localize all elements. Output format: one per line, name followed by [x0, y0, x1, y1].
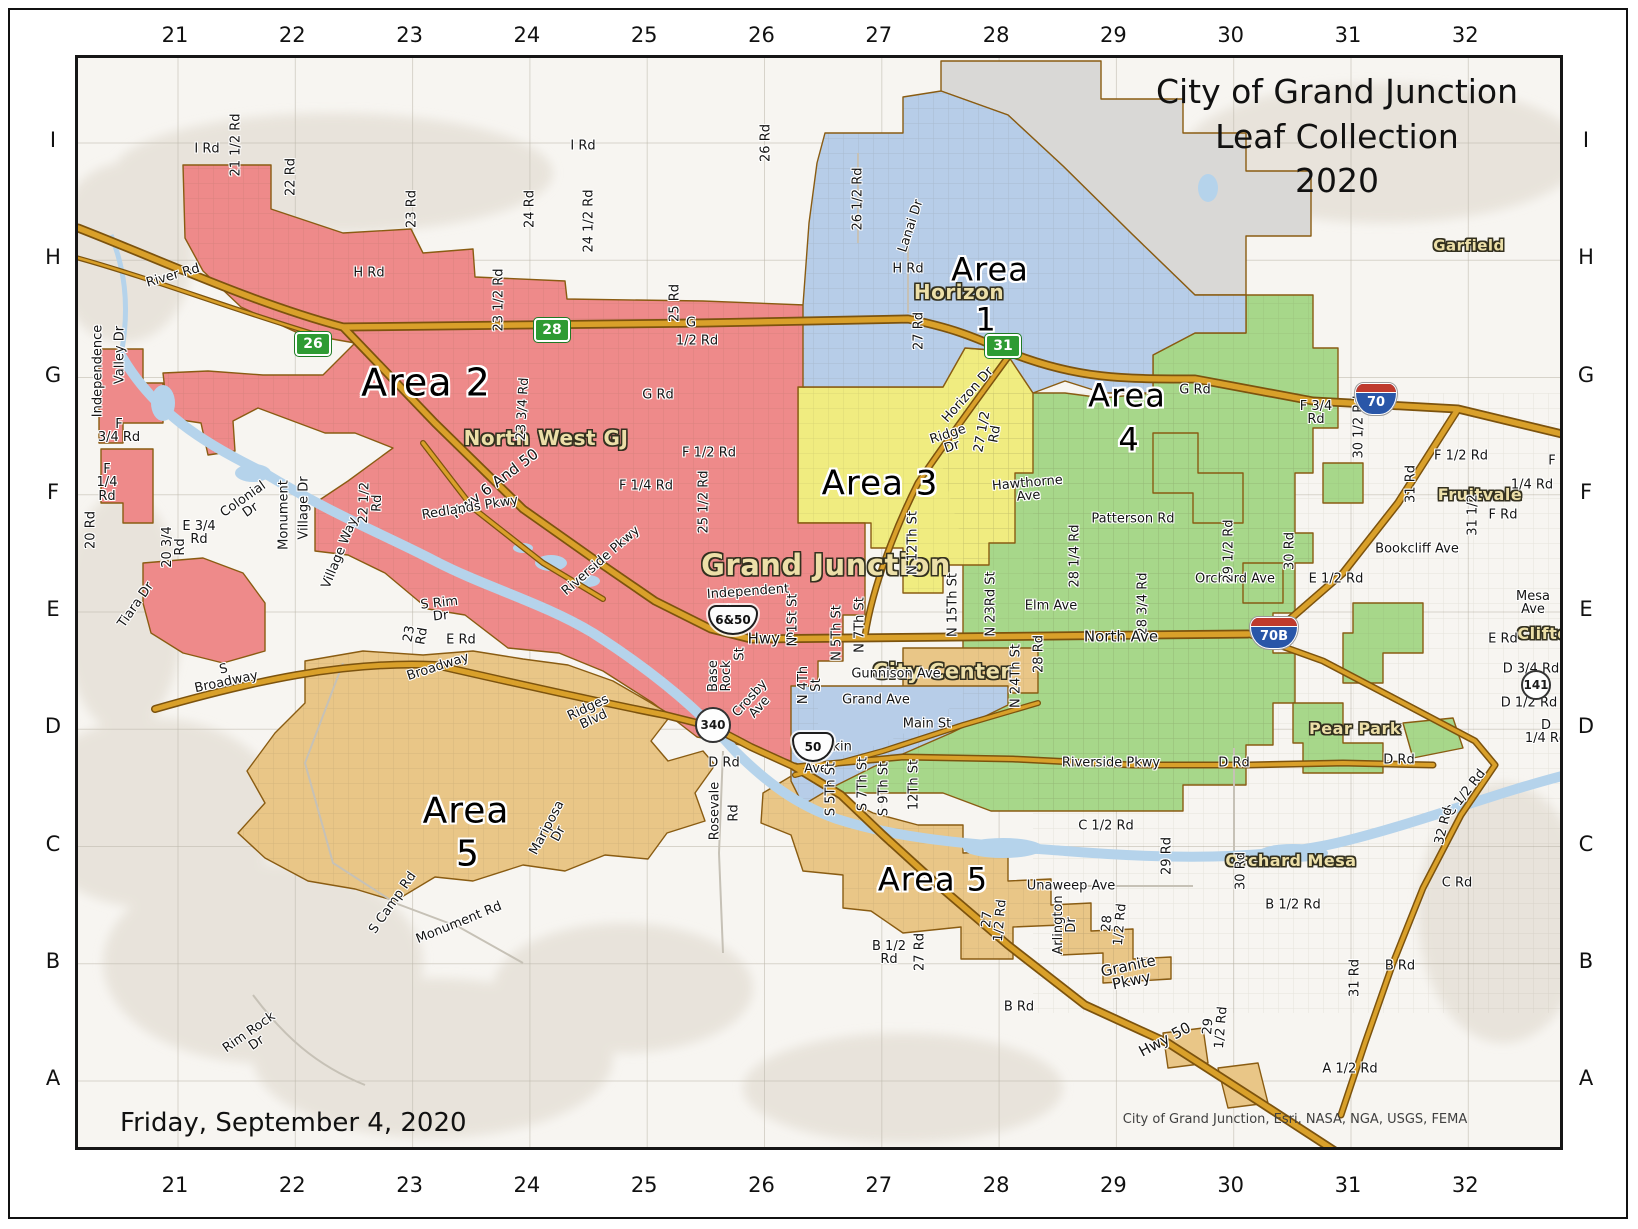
- road-label: Lanai Dr: [896, 198, 925, 254]
- road-label: Rosevale: [708, 782, 721, 840]
- road-label: St: [733, 647, 746, 660]
- grid-column-label: 22: [279, 1173, 306, 1197]
- leaf-collection-map-page: 212223242526272829303132 212223242526272…: [0, 0, 1638, 1229]
- road-label: 1/2 Rd: [676, 334, 718, 347]
- grid-column-label: 24: [514, 1173, 541, 1197]
- shield-number: 50: [805, 740, 822, 754]
- road-label: North Ave: [1084, 629, 1158, 644]
- road-label: Tiara Dr: [116, 580, 157, 630]
- grid-row-label: C: [1579, 832, 1594, 856]
- road-label: F: [1548, 454, 1555, 467]
- road-label: Mesa Ave: [1516, 590, 1550, 617]
- grid-column-label: 23: [396, 1173, 423, 1197]
- road-label: Village Dr: [297, 476, 310, 539]
- place-label: Clifton: [1517, 626, 1563, 642]
- road-label: 31 Rd: [1404, 465, 1417, 503]
- road-label: 29 1/2 Rd: [1200, 1005, 1230, 1049]
- road-label: Ridges Blvd: [565, 693, 616, 736]
- shield-number: 6&50: [715, 613, 751, 627]
- shield-number: 340: [700, 718, 725, 732]
- place-label: Pear Park: [1309, 721, 1401, 737]
- road-label: S Rim Dr: [420, 595, 460, 625]
- road-label: Patterson Rd: [1091, 512, 1174, 525]
- road-label: 28 1/4 Rd: [1068, 524, 1081, 587]
- map-title-line1: City of Grand Junction: [1117, 70, 1557, 115]
- road-label: 30 Rd: [1234, 852, 1247, 890]
- road-label: 22 Rd: [284, 158, 297, 196]
- shield-number: 31: [993, 338, 1012, 354]
- road-label: F Rd: [1489, 508, 1518, 521]
- grid-row-label: E: [46, 597, 59, 621]
- road-label: Rd: [727, 804, 740, 821]
- place-label: Horizon: [914, 282, 1004, 302]
- road-label: S 5Th St: [824, 762, 837, 816]
- route-shield-26-icon: 26: [295, 332, 331, 356]
- grid-row-label: E: [1579, 597, 1592, 621]
- road-label: 27 1/2 Rd: [979, 898, 1009, 942]
- road-label: D 1/4 Rd: [1525, 719, 1563, 746]
- grid-column-label: 28: [983, 23, 1010, 47]
- area-label: 1: [975, 304, 996, 337]
- grid-row-label: A: [1579, 1066, 1593, 1090]
- road-label: Riverside Pkwy: [1062, 756, 1160, 769]
- road-label: F 1/4 Rd: [97, 463, 118, 503]
- road-label: I Rd: [194, 142, 219, 155]
- road-label: A 1/2 Rd: [1322, 1062, 1377, 1075]
- map-frame: Area 2Area1Area 3Area4Area5Area 5Horizon…: [75, 55, 1563, 1150]
- road-label: E 1/2 Rd: [1309, 572, 1364, 585]
- road-label: 31 Rd: [1348, 959, 1361, 997]
- road-label: G: [686, 316, 696, 329]
- grid-row-label: F: [47, 480, 59, 504]
- road-label: D Rd: [1218, 756, 1249, 769]
- road-label: N 4Th St: [797, 666, 824, 704]
- road-label: 23 Rd: [405, 190, 418, 228]
- road-label: Main St: [903, 717, 952, 730]
- shield-number: 70B: [1260, 629, 1288, 644]
- grid-row-label: G: [1578, 363, 1594, 387]
- road-label: Valley Dr: [113, 326, 126, 384]
- road-label: N 7Th St: [853, 597, 866, 653]
- road-label: Granite Pkwy: [1100, 953, 1161, 995]
- road-label: Gunnison Ave: [851, 667, 940, 680]
- grid-row-label: B: [46, 949, 60, 973]
- grid-column-label: 29: [1100, 23, 1127, 47]
- road-label: Grand Ave: [842, 693, 910, 706]
- road-label: 20 Rd: [84, 511, 97, 549]
- shield-number: 70: [1367, 395, 1385, 410]
- road-label: E Rd: [446, 633, 476, 646]
- road-label: Independent: [706, 583, 789, 602]
- area-label: Area 5: [878, 864, 988, 897]
- road-label: F 1/2 Rd: [1434, 449, 1488, 462]
- grid-row-label: B: [1579, 949, 1593, 973]
- road-label: B Rd: [1004, 1000, 1034, 1013]
- road-label: C Rd: [1442, 876, 1473, 889]
- grid-row-label: D: [45, 714, 61, 738]
- road-label: Ridge Dr: [928, 423, 972, 460]
- road-label: N 15Th St: [946, 573, 959, 637]
- road-label: 25 1/2 Rd: [697, 470, 710, 533]
- place-label: North West GJ: [464, 428, 629, 448]
- grid-row-label: D: [1578, 714, 1594, 738]
- route-shield-340-icon: 340: [695, 707, 731, 743]
- road-label: 12Th St: [907, 760, 920, 810]
- road-label: F 3/4 Rd: [98, 418, 140, 445]
- grid-row-label: G: [45, 363, 61, 387]
- grid-row-label: H: [1578, 245, 1594, 269]
- road-label: 27 Rd: [912, 312, 925, 350]
- map-attribution: City of Grand Junction, Esri, NASA, NGA,…: [1085, 1112, 1505, 1127]
- grid-row-label: I: [50, 128, 56, 152]
- road-label: Independence: [91, 325, 104, 417]
- road-label: Crosby Ave: [730, 677, 780, 728]
- road-label: Elm Ave: [1025, 599, 1077, 612]
- road-label: S 9Th St: [877, 762, 890, 816]
- grid-column-label: 30: [1217, 1173, 1244, 1197]
- shield-number: 26: [303, 336, 322, 352]
- grid-column-label: 31: [1335, 23, 1362, 47]
- area-label: 4: [1118, 424, 1139, 457]
- road-label: 25 Rd: [668, 284, 681, 322]
- road-label: Base Rock: [707, 660, 734, 692]
- road-label: Rim Rock Dr: [221, 1010, 286, 1066]
- road-label: 26 1/2 Rd: [851, 167, 864, 230]
- road-label: 24 1/2 Rd: [582, 189, 595, 252]
- route-shield-70-icon: 70: [1355, 383, 1397, 415]
- road-label: 31 1/2: [1466, 494, 1479, 536]
- road-label: N 1St St: [786, 594, 799, 647]
- route-shield-141-icon: 141: [1521, 670, 1551, 700]
- road-label: G Rd: [1179, 383, 1211, 396]
- road-label: 32 Rd: [1433, 806, 1455, 846]
- road-label: Village Way: [320, 516, 361, 591]
- route-shield-50-icon: 50: [792, 732, 834, 762]
- road-label: Bookcliff Ave: [1375, 542, 1459, 555]
- road-label: Riverside Pkwy: [560, 524, 643, 598]
- map-title-line3: 2020: [1117, 159, 1557, 204]
- map-labels-layer: Area 2Area1Area 3Area4Area5Area 5Horizon…: [78, 58, 1560, 1147]
- grid-column-label: 26: [748, 23, 775, 47]
- grid-column-label: 23: [396, 23, 423, 47]
- road-label: 29 1/2 Rd: [1222, 519, 1235, 582]
- road-label: D Rd: [1383, 753, 1414, 766]
- area-label: Area: [1088, 380, 1166, 413]
- road-label: D Rd: [708, 756, 739, 769]
- road-label: 1/4 Rd: [1511, 478, 1553, 491]
- road-label: H Rd: [892, 262, 923, 275]
- road-label: 24 Rd: [523, 190, 536, 228]
- grid-row-label: F: [1580, 480, 1592, 504]
- grid-row-label: C: [46, 832, 61, 856]
- road-label: 22 1/2 Rd: [357, 482, 385, 525]
- road-label: 28 1/2 Rd: [1099, 902, 1129, 946]
- road-label: 27 1/2 Rd: [972, 410, 1005, 456]
- area-label: 5: [456, 837, 480, 874]
- map-title: City of Grand Junction Leaf Collection 2…: [1117, 70, 1557, 204]
- road-label: River Rd: [145, 262, 202, 290]
- grid-column-label: 27: [865, 23, 892, 47]
- grid-column-label: 22: [279, 23, 306, 47]
- road-label: Unaweep Ave: [1027, 879, 1116, 892]
- route-shield-28-icon: 28: [534, 318, 570, 342]
- grid-column-label: 31: [1335, 1173, 1362, 1197]
- collection-date-label: Friday, September 4, 2020: [120, 1108, 467, 1138]
- route-shield-70b-icon: 70B: [1250, 617, 1298, 649]
- grid-column-label: 24: [514, 23, 541, 47]
- road-label: F 1/2 Rd: [682, 446, 736, 459]
- road-label: 23 3/4 Rd: [515, 377, 532, 441]
- grid-column-label: 25: [631, 23, 658, 47]
- road-label: 28 3/4 Rd: [1136, 572, 1149, 635]
- road-label: 28 Rd: [1032, 635, 1045, 673]
- road-label: I Rd: [570, 139, 595, 152]
- place-label: Garfield: [1433, 238, 1505, 253]
- grid-column-label: 25: [631, 1173, 658, 1197]
- road-label: Monument Rd: [414, 900, 503, 946]
- road-label: G Rd: [642, 388, 674, 401]
- road-label: 29 Rd: [1160, 837, 1173, 875]
- road-label: N 5Th St: [830, 605, 843, 661]
- road-label: 27 Rd: [913, 933, 926, 971]
- grid-row-label: H: [45, 245, 61, 269]
- road-label: B 1/2 Rd: [1265, 898, 1320, 911]
- grid-column-label: 32: [1452, 1173, 1479, 1197]
- grid-row-label: I: [1583, 128, 1589, 152]
- road-label: E 3/4 Rd: [182, 520, 215, 547]
- road-label: S Broadway: [191, 656, 260, 695]
- road-label: S 7Th St: [856, 757, 869, 811]
- road-label: N 12Th St: [906, 511, 919, 575]
- road-label: B 1/2 Rd: [872, 940, 906, 967]
- area-label: Area 2: [361, 364, 491, 403]
- road-label: Colonial Dr: [218, 479, 276, 531]
- area-label: Area 3: [822, 467, 939, 502]
- road-label: H Rd: [353, 266, 384, 279]
- grid-column-label: 21: [162, 23, 189, 47]
- road-label: Arlington Dr: [1052, 895, 1079, 954]
- grid-column-label: 30: [1217, 23, 1244, 47]
- road-label: Hwy 50: [1137, 1020, 1194, 1060]
- road-label: Hawthorne Ave: [991, 474, 1064, 507]
- shield-number: 141: [1523, 678, 1548, 692]
- area-label: Area: [423, 794, 510, 831]
- road-label: 23 1/2 Rd: [492, 268, 505, 331]
- road-label: B Rd: [1385, 959, 1415, 972]
- grid-row-label: A: [46, 1066, 60, 1090]
- grid-column-label: 21: [162, 1173, 189, 1197]
- road-label: Broadway: [405, 651, 470, 684]
- road-label: F 1/4 Rd: [619, 479, 673, 492]
- grid-column-label: 29: [1100, 1173, 1127, 1197]
- road-label: N 24Th St: [1009, 644, 1022, 708]
- road-label: Mariposa Dr: [527, 799, 578, 864]
- map-title-line2: Leaf Collection: [1117, 115, 1557, 160]
- road-label: S Camp Rd: [367, 870, 419, 936]
- road-label: C 1/2 Rd: [1078, 819, 1134, 832]
- shield-number: 28: [542, 322, 561, 338]
- grid-column-label: 26: [748, 1173, 775, 1197]
- road-label: 26 Rd: [759, 124, 772, 162]
- grid-column-label: 27: [865, 1173, 892, 1197]
- grid-column-label: 28: [983, 1173, 1010, 1197]
- road-label: Monument: [277, 480, 290, 550]
- road-label: F 3/4 Rd: [1300, 400, 1333, 427]
- road-label: E Rd: [1488, 632, 1518, 645]
- road-label: 21 1/2 Rd: [229, 113, 242, 176]
- grid-column-label: 32: [1452, 23, 1479, 47]
- road-label: N 23Rd St: [984, 571, 997, 636]
- road-label: 30 Rd: [1283, 532, 1296, 570]
- road-label: 23 Rd: [401, 624, 430, 646]
- route-shield-31-icon: 31: [985, 334, 1021, 358]
